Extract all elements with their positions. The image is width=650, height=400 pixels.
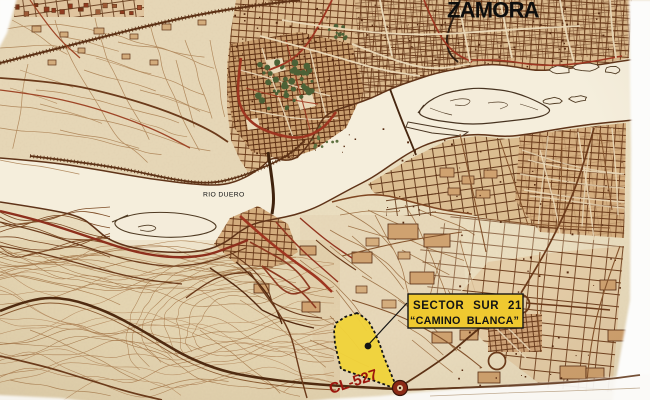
svg-text:“CAMINO BLANCA”: “CAMINO BLANCA” <box>410 315 519 327</box>
svg-text:SECTOR SUR 21: SECTOR SUR 21 <box>413 300 522 312</box>
